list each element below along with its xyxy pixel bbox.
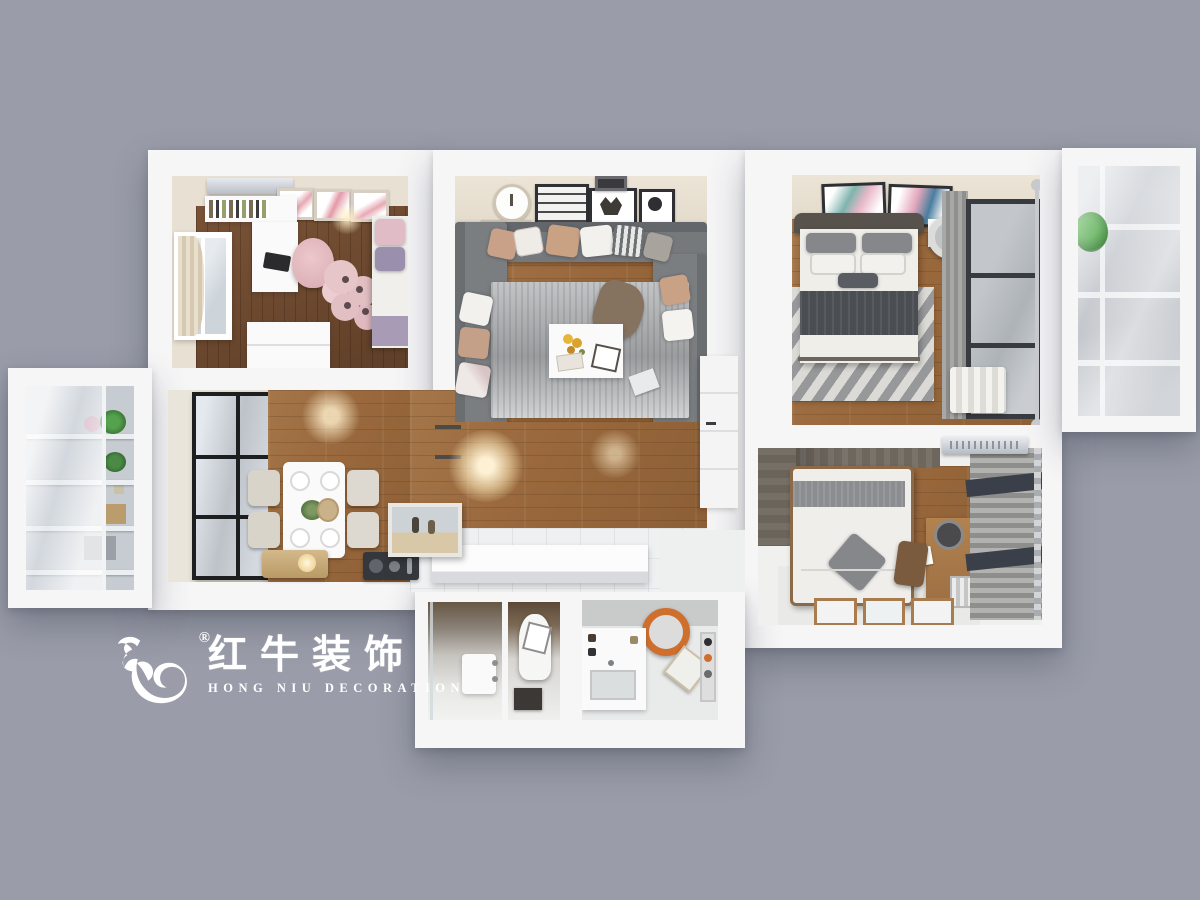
stove-pot-1	[369, 559, 383, 573]
brand-name-chinese: 红牛装饰	[208, 636, 465, 675]
sofa-pillow-tan-4	[458, 327, 491, 360]
bath-vanity	[582, 628, 646, 710]
plate-2	[320, 471, 340, 491]
dining-chair-2	[248, 512, 280, 548]
clock-hands	[510, 194, 513, 206]
brand-watermark: ® 红牛装饰 HONG NIU DECORATION	[112, 636, 465, 708]
floor-mat	[863, 598, 906, 625]
table-tray	[317, 498, 339, 522]
kids-pillow-pink	[375, 219, 405, 245]
master-pillow-accent	[838, 273, 878, 288]
second-bed-pillow	[827, 532, 888, 592]
kids-rug-dots	[342, 276, 349, 283]
second-ac-unit	[942, 436, 1028, 454]
hall-wardrobe	[700, 356, 738, 508]
stove-pot-2	[389, 561, 400, 572]
kids-pillow-lilac	[375, 247, 405, 271]
bull-logo-icon: ®	[112, 636, 194, 708]
room-bath-toilet	[508, 602, 560, 720]
toilet-lid-frame	[522, 622, 552, 655]
room-master-bedroom	[792, 175, 1040, 425]
leaning-artwork-beach	[388, 503, 462, 557]
bull-logo-svg	[112, 636, 194, 708]
master-window-zone	[942, 191, 1040, 419]
second-window-rail-1	[965, 472, 1042, 497]
sofa-pillow-pattern	[513, 226, 544, 257]
partition-mullion-v	[236, 396, 240, 576]
second-desk-chair	[893, 540, 929, 588]
sofa-pillow-tan-2	[545, 224, 581, 258]
master-pillow-white-2	[860, 253, 906, 275]
second-bed-fold	[801, 569, 897, 571]
shower-basin	[462, 654, 496, 694]
storage-plant-2	[104, 452, 126, 472]
wall-clock	[493, 184, 531, 222]
moose-art	[600, 197, 622, 215]
plate-4	[320, 528, 340, 548]
sofa-pillow-white-3	[458, 291, 494, 327]
sideboard-breadbox	[262, 550, 328, 578]
sofa-pillow-white-2	[662, 309, 695, 342]
brand-text-block: 红牛装饰 HONG NIU DECORATION	[208, 636, 465, 696]
balcony-glass-sheen	[1078, 166, 1180, 416]
hall-wall-shelf-1	[435, 425, 461, 429]
shower-fixture	[492, 660, 498, 666]
gallery-frame-flag	[595, 176, 627, 191]
floorplan-render-scene: ® 红牛装饰 HONG NIU DECORATION	[0, 0, 1200, 900]
floor-mat	[911, 598, 954, 625]
master-pillow-white-1	[810, 253, 856, 275]
master-window-mullion-2	[971, 343, 1039, 348]
round-art	[648, 197, 662, 211]
balcony-left-interior	[26, 386, 134, 590]
room-living	[455, 176, 707, 422]
sofa-pillow-striped	[612, 225, 645, 258]
ac-vent-lines	[950, 441, 1020, 449]
gallery-frame-round-art	[639, 189, 675, 225]
master-pillow-gray-1	[806, 233, 856, 253]
sofa-pillow-white-1	[580, 224, 615, 257]
brand-name-english: HONG NIU DECORATION	[208, 681, 465, 696]
floor-mat	[814, 598, 857, 625]
second-bed	[790, 466, 914, 606]
partition-mullion-h1	[196, 455, 276, 459]
second-window-rail-2	[965, 546, 1042, 571]
balcony-right-interior	[1078, 166, 1180, 416]
master-footboard	[798, 357, 920, 361]
dining-chair-4	[347, 512, 379, 548]
coffee-table-books	[556, 352, 584, 371]
plate-3	[290, 528, 310, 548]
room-bath-laundry	[582, 600, 718, 720]
second-desk-mirror	[934, 520, 964, 550]
books	[209, 200, 269, 218]
hall-wall-shelf-2	[435, 455, 461, 459]
second-blinds	[970, 448, 1042, 620]
vanity-items	[588, 634, 596, 642]
coffee-table-frame	[591, 344, 621, 373]
toilet	[519, 614, 551, 680]
second-floor-mats	[814, 598, 954, 622]
shelf-items-dots	[704, 638, 712, 646]
dining-table	[283, 462, 345, 558]
breadbox-glow	[298, 554, 316, 572]
master-bed	[800, 229, 918, 363]
beach-figure-1	[412, 517, 419, 533]
kids-blanket-lilac	[372, 316, 408, 346]
room-kids-bedroom	[172, 176, 408, 368]
entry-floor	[660, 530, 745, 592]
master-sheer-curtain	[950, 367, 1006, 413]
kids-curtain	[178, 236, 204, 336]
dining-chair-1	[248, 470, 280, 506]
master-pillow-gray-2	[862, 233, 912, 253]
second-bed-gray-band	[793, 481, 905, 507]
kids-window	[174, 232, 232, 340]
kids-bookshelf	[205, 196, 297, 222]
kids-bed	[372, 216, 408, 348]
sofa-pillow-tan-3	[659, 274, 691, 306]
sofa-pillow-floral	[455, 361, 492, 398]
toilet-caddy	[514, 688, 542, 710]
curtain-rod-finial-top	[1031, 179, 1040, 191]
vanity-sink	[590, 670, 636, 700]
master-quilt-charcoal	[800, 291, 918, 335]
wardrobe-handle	[706, 422, 716, 425]
second-blind-rail	[1034, 448, 1041, 620]
registered-mark: ®	[199, 630, 210, 647]
stove-faucet	[407, 558, 412, 574]
coffee-table-flowers	[563, 334, 573, 344]
vanity-faucet	[608, 660, 614, 666]
flamingo-art-2	[314, 189, 352, 221]
curtain-rod-finial-bottom	[1031, 419, 1040, 425]
coffee-table	[549, 324, 623, 378]
bath-shelf-unit	[700, 632, 716, 702]
curtain-rod	[1035, 185, 1039, 423]
room-second-bedroom	[758, 448, 1042, 625]
plate-1	[290, 471, 310, 491]
beach-figure-2	[428, 520, 435, 534]
dining-chair-3	[347, 470, 379, 506]
balcony-left-glass-sheen	[26, 386, 106, 590]
master-window-mullion-1	[971, 273, 1039, 278]
kids-flower-rug	[324, 260, 358, 294]
kitchen-island	[432, 545, 648, 583]
kids-cabinet	[247, 322, 330, 368]
